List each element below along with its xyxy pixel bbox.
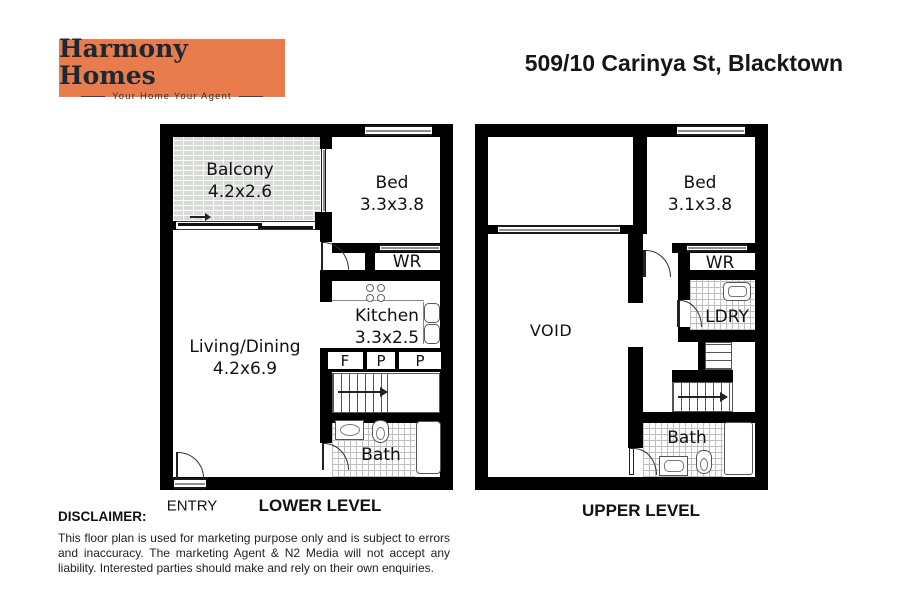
wall bbox=[320, 212, 332, 242]
wall bbox=[755, 124, 768, 490]
room-name: Balcony bbox=[206, 159, 273, 181]
disclaimer-body: This floor plan is used for marketing pu… bbox=[58, 531, 450, 576]
wall bbox=[678, 330, 768, 342]
laundry-sink-fixture bbox=[723, 282, 751, 301]
wall bbox=[633, 137, 647, 234]
wall bbox=[628, 347, 643, 412]
slide-arrow-head bbox=[205, 213, 211, 221]
label-fridge: F bbox=[341, 353, 350, 369]
void-balustrade-window bbox=[498, 225, 620, 234]
window bbox=[677, 125, 745, 136]
wall bbox=[678, 280, 690, 300]
wall bbox=[320, 137, 332, 149]
wall bbox=[320, 270, 332, 302]
room-label-wr: WR bbox=[393, 251, 422, 273]
room-label-balcony: Balcony 4.2x2.6 bbox=[206, 159, 273, 203]
room-label-bed: Bed 3.3x3.8 bbox=[360, 172, 424, 216]
sliding-door-panel bbox=[178, 223, 262, 226]
stairs-winder bbox=[705, 342, 732, 370]
vanity-basin bbox=[664, 460, 684, 472]
laundry-sink-basin bbox=[728, 286, 747, 297]
kitchen-sink-basin bbox=[424, 303, 440, 323]
label-pantry: P bbox=[415, 353, 424, 369]
disclaimer-title: DISCLAIMER: bbox=[58, 509, 147, 524]
stove-burner bbox=[377, 294, 385, 302]
wall bbox=[475, 477, 768, 490]
wall bbox=[440, 124, 453, 490]
wall bbox=[320, 423, 332, 443]
wall bbox=[160, 221, 176, 230]
room-name: Bed bbox=[360, 172, 424, 194]
label-pantry: P bbox=[376, 353, 385, 369]
stair-landing bbox=[388, 373, 440, 413]
room-dims: 3.3x2.5 bbox=[355, 327, 419, 349]
stove-burner bbox=[366, 284, 374, 292]
vanity-basin bbox=[340, 424, 360, 436]
wall bbox=[365, 253, 375, 271]
wall bbox=[475, 124, 488, 490]
upper-level-plan: Bed 3.1x3.8 WR LDRY VOID Bath bbox=[475, 124, 768, 490]
vanity-fixture bbox=[335, 420, 364, 440]
wall bbox=[698, 338, 705, 372]
room-name: Living/Dining bbox=[189, 336, 300, 358]
stair-arrow bbox=[678, 396, 720, 398]
room-label-bath: Bath bbox=[667, 427, 707, 449]
slide-arrow bbox=[190, 216, 205, 218]
vanity-fixture bbox=[659, 456, 688, 476]
room-label-kitchen: Kitchen 3.3x2.5 bbox=[355, 305, 419, 349]
toilet-bowl bbox=[376, 427, 385, 440]
lower-level-caption: LOWER LEVEL bbox=[259, 496, 382, 516]
room-label-bath: Bath bbox=[361, 444, 401, 466]
wall bbox=[320, 270, 440, 281]
stair-arrow-head bbox=[380, 387, 388, 397]
stair-arrow-head bbox=[720, 392, 728, 402]
window bbox=[365, 125, 432, 136]
shower-fixture bbox=[724, 422, 753, 475]
bathtub-fixture bbox=[416, 421, 441, 474]
room-name: Kitchen bbox=[355, 305, 419, 327]
room-label-bed: Bed 3.1x3.8 bbox=[668, 172, 732, 216]
agency-logo: Harmony Homes Your Home Your Agent bbox=[59, 39, 285, 97]
window bbox=[321, 149, 326, 212]
sliding-door bbox=[176, 221, 315, 230]
room-dims: 4.2x2.6 bbox=[206, 181, 273, 203]
room-dims: 3.3x3.8 bbox=[360, 194, 424, 216]
upper-level-caption: UPPER LEVEL bbox=[582, 501, 700, 521]
door-arc bbox=[646, 250, 671, 277]
kitchen-sink-basin bbox=[424, 324, 440, 344]
room-dims: 3.1x3.8 bbox=[668, 194, 732, 216]
room-label-ldry: LDRY bbox=[705, 306, 749, 328]
agency-logo-title: Harmony Homes bbox=[59, 35, 285, 89]
floorplan-page: { "header": { "logo": { "title": "Harmon… bbox=[0, 0, 900, 600]
room-label-living: Living/Dining 4.2x6.9 bbox=[189, 336, 300, 380]
stair-arrow bbox=[338, 391, 380, 393]
toilet-fixture bbox=[696, 450, 712, 474]
wall bbox=[488, 225, 498, 234]
stove-burner bbox=[366, 294, 374, 302]
room-dims: 4.2x6.9 bbox=[189, 358, 300, 380]
toilet-fixture bbox=[372, 420, 389, 443]
sliding-door-panel bbox=[258, 226, 313, 229]
entry-threshold bbox=[174, 478, 206, 489]
room-label-wr: WR bbox=[706, 252, 735, 274]
agency-logo-tagline: Your Home Your Agent bbox=[81, 91, 263, 102]
room-label-void: VOID bbox=[530, 320, 572, 342]
property-address: 509/10 Carinya St, Blacktown bbox=[440, 50, 843, 77]
room-name: Bed bbox=[668, 172, 732, 194]
wall bbox=[628, 233, 643, 303]
stove-burner bbox=[377, 284, 385, 292]
door-arc bbox=[178, 452, 204, 478]
wall bbox=[320, 372, 332, 413]
wall bbox=[160, 124, 173, 490]
window bbox=[687, 244, 747, 252]
wall bbox=[628, 423, 643, 448]
lower-level-plan: Balcony 4.2x2.6 Bed 3.3x3.8 WR Kitchen 3… bbox=[160, 124, 453, 490]
wall bbox=[672, 370, 733, 382]
toilet-bowl bbox=[700, 458, 708, 471]
entry-caption: ENTRY bbox=[167, 498, 218, 515]
